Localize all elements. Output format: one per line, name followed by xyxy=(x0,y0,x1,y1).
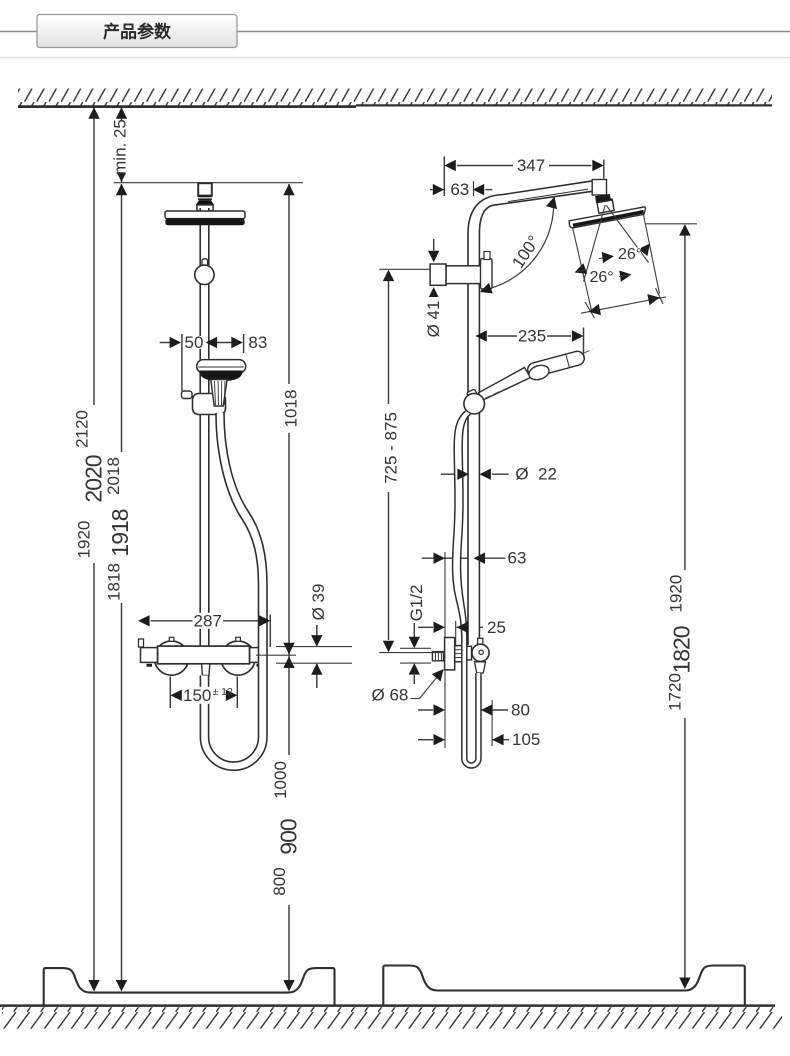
svg-text:G1/2: G1/2 xyxy=(407,585,426,622)
svg-text:83: 83 xyxy=(248,333,267,352)
svg-text:1720: 1720 xyxy=(666,673,685,711)
svg-text:1920: 1920 xyxy=(667,575,686,613)
svg-text:26°: 26° xyxy=(618,246,642,263)
svg-text:235: 235 xyxy=(518,327,546,346)
svg-text:63: 63 xyxy=(508,549,527,568)
svg-text:63: 63 xyxy=(450,180,469,199)
svg-text:1820: 1820 xyxy=(669,626,695,673)
svg-text:产品参数: 产品参数 xyxy=(103,22,172,42)
svg-text:26°: 26° xyxy=(590,269,614,286)
svg-text:725 - 875: 725 - 875 xyxy=(381,412,400,484)
svg-text:Ø 39: Ø 39 xyxy=(309,584,328,621)
svg-text:± 12: ± 12 xyxy=(213,686,234,698)
svg-text:1818: 1818 xyxy=(105,563,124,601)
svg-text:1918: 1918 xyxy=(107,509,133,556)
svg-text:105: 105 xyxy=(512,730,540,749)
svg-text:25: 25 xyxy=(487,618,506,637)
svg-text:1000: 1000 xyxy=(271,761,290,799)
svg-text:800: 800 xyxy=(270,867,289,895)
svg-text:2020: 2020 xyxy=(81,455,107,502)
svg-text:1920: 1920 xyxy=(75,521,94,559)
svg-text:900: 900 xyxy=(276,819,302,855)
svg-text:2018: 2018 xyxy=(104,457,123,495)
svg-text:80: 80 xyxy=(511,701,530,720)
svg-text:150: 150 xyxy=(183,686,211,705)
svg-text:min. 25: min. 25 xyxy=(111,119,130,175)
svg-text:347: 347 xyxy=(517,156,545,175)
svg-text:Ø 68: Ø 68 xyxy=(372,686,409,705)
svg-text:50: 50 xyxy=(185,333,204,352)
svg-text:Ø 22: Ø 22 xyxy=(515,465,557,484)
svg-text:287: 287 xyxy=(194,611,222,630)
svg-text:Ø 41: Ø 41 xyxy=(424,301,443,338)
svg-text:1018: 1018 xyxy=(282,390,301,428)
svg-text:2120: 2120 xyxy=(72,410,91,448)
